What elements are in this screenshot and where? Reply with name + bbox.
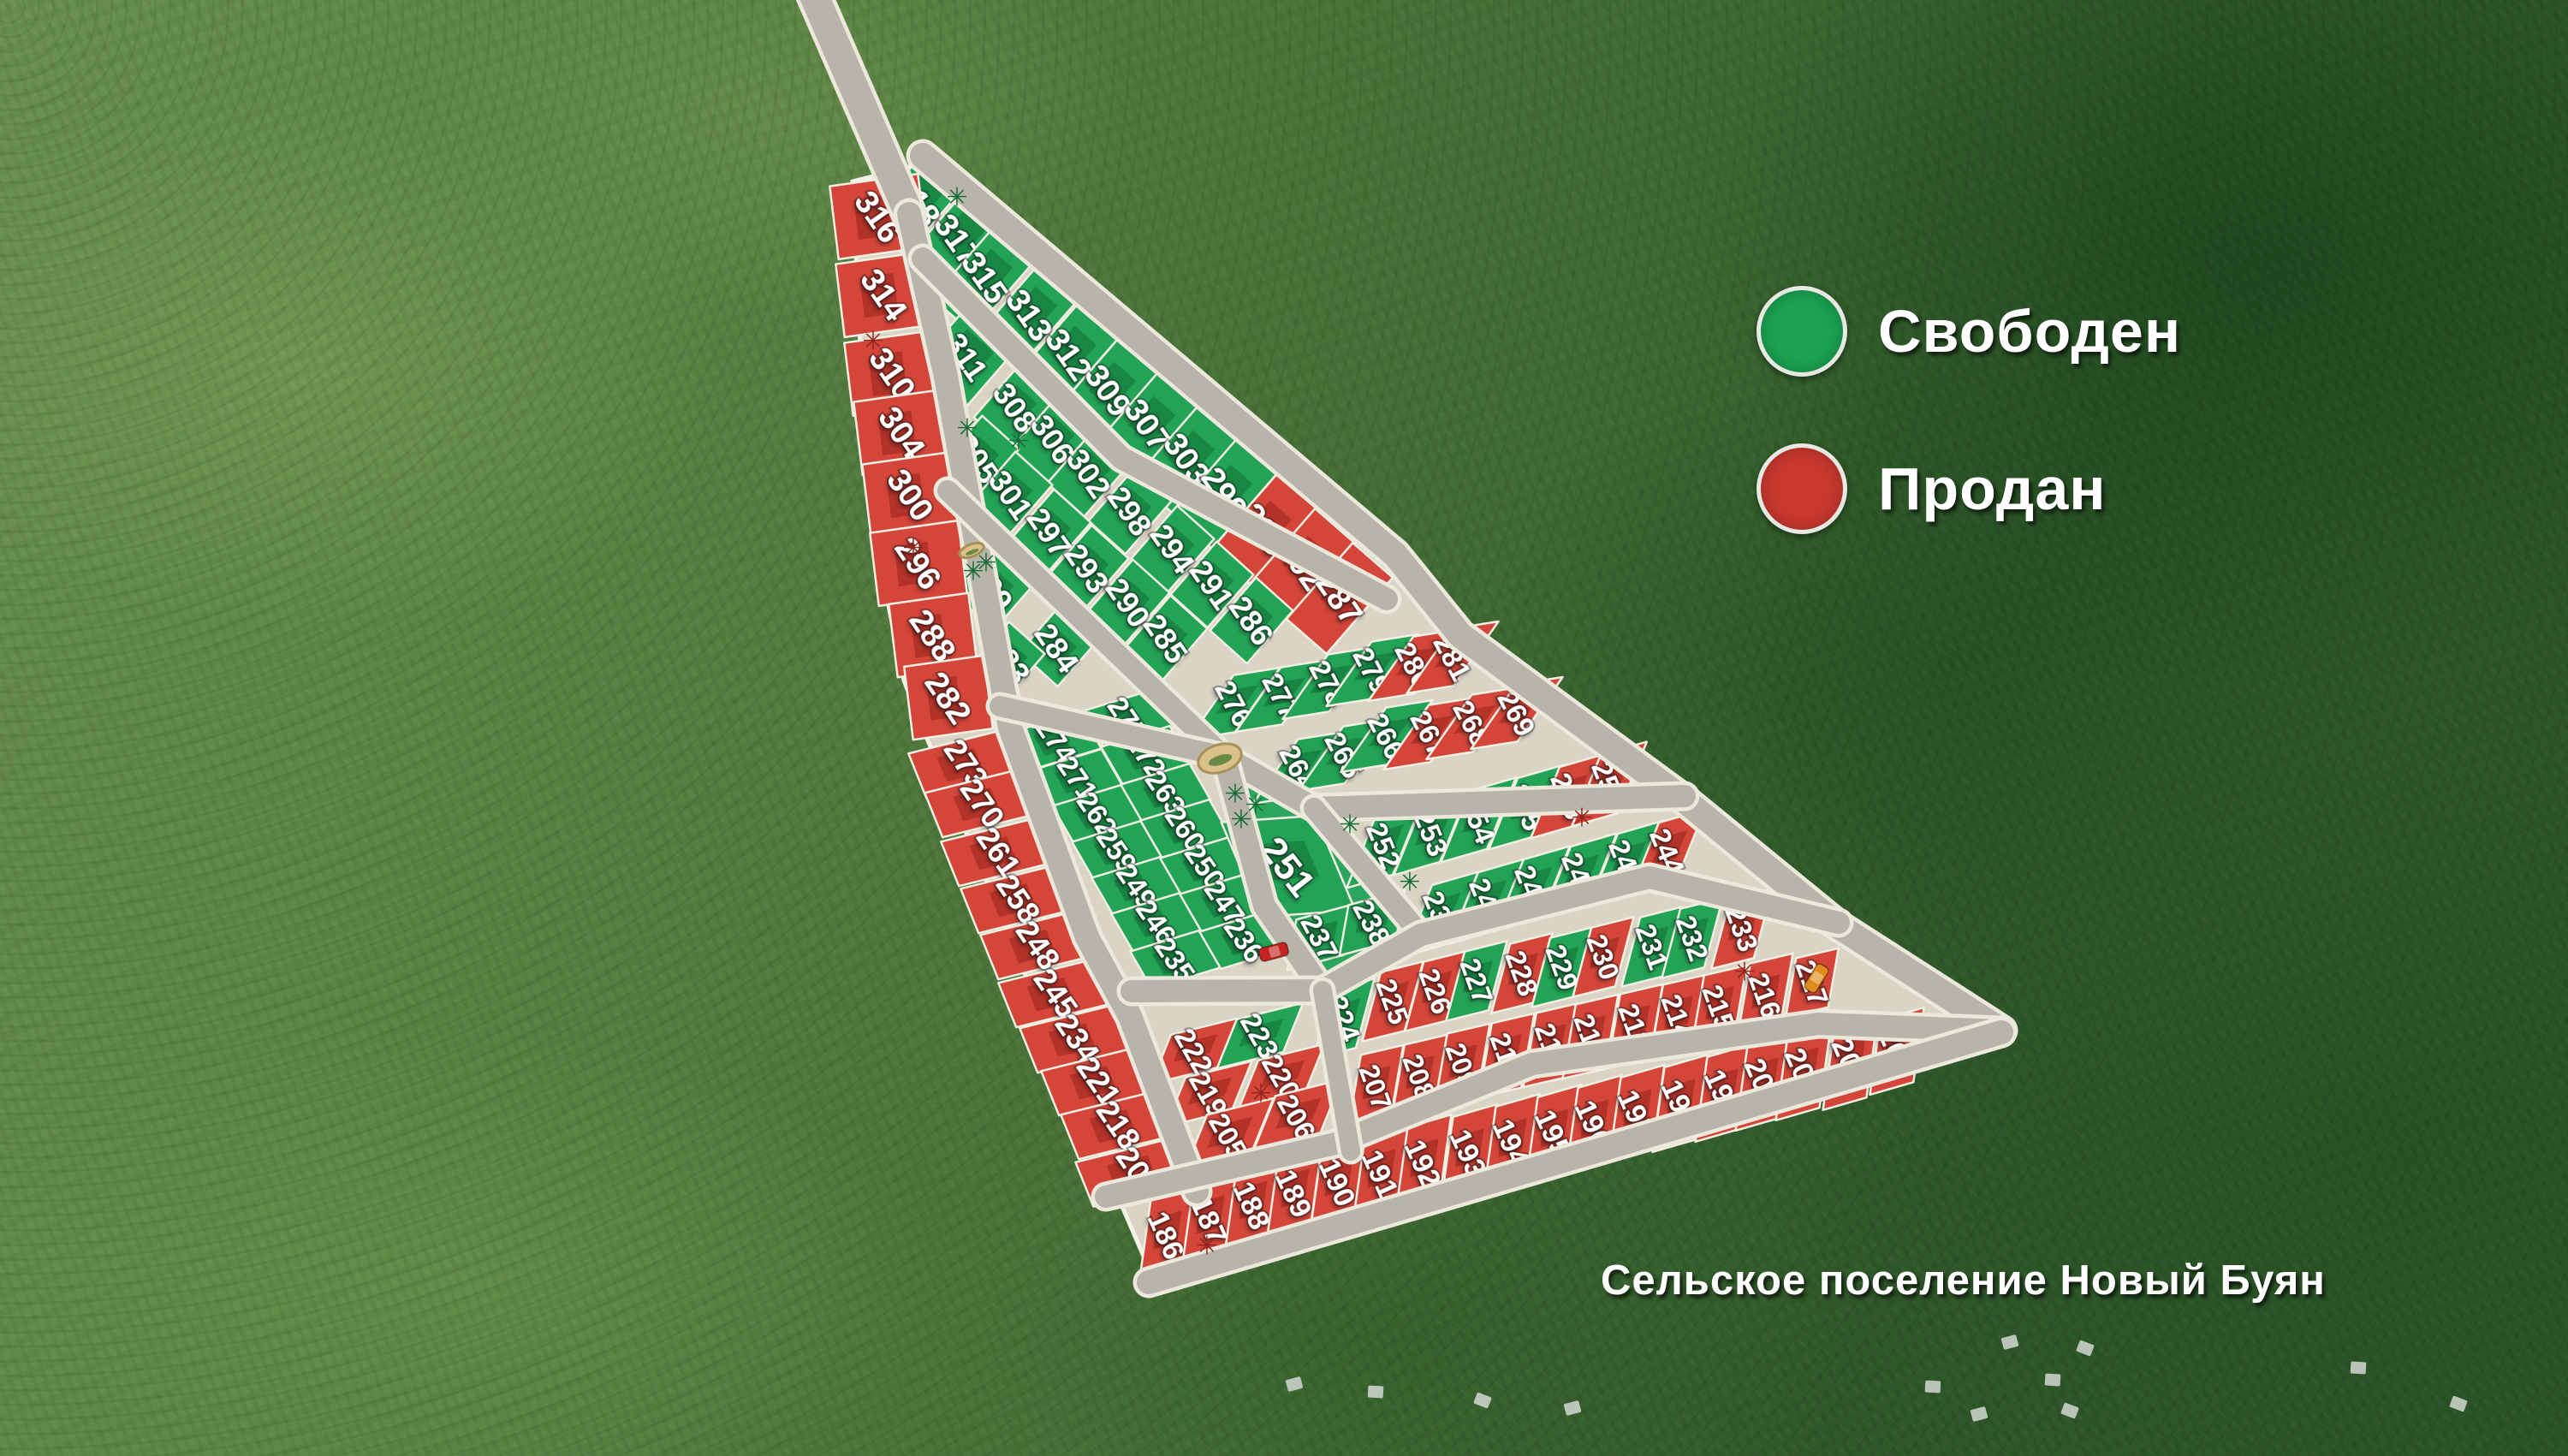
settlement-caption: Сельское поселение Новый Буян <box>1601 1257 2326 1304</box>
plot-296[interactable]: 296 <box>870 520 966 606</box>
tree-icon: ✳ <box>902 535 924 563</box>
legend-row-sold: Продан <box>1757 443 2181 534</box>
tree-icon: ✳ <box>1224 781 1245 809</box>
village-building <box>1285 1376 1303 1392</box>
village-building <box>1925 1381 1941 1394</box>
tree-icon: ✳ <box>975 550 996 578</box>
tree-icon: ✳ <box>1399 869 1420 897</box>
village-building <box>2000 1334 2018 1350</box>
legend-free-label: Свободен <box>1878 297 2181 365</box>
tree-icon: ✳ <box>1733 959 1755 987</box>
village-building <box>2045 1374 2061 1387</box>
village-building <box>1368 1386 1384 1399</box>
tree-icon: ✳ <box>1571 805 1592 833</box>
legend-sold-label: Продан <box>1878 455 2107 523</box>
free-status-icon <box>1757 286 1847 377</box>
legend: Свободен Продан <box>1757 286 2181 534</box>
village-building <box>1473 1392 1492 1409</box>
plot-282[interactable]: 282 <box>904 656 993 740</box>
tree-icon: ✳ <box>1339 811 1360 840</box>
village-building <box>1563 1400 1581 1416</box>
legend-row-free: Свободен <box>1757 286 2181 377</box>
tree-icon: ✳ <box>1250 1080 1271 1108</box>
tree-icon: ✳ <box>1230 806 1251 835</box>
satellite-map: 3183173153133123093073032992952922873113… <box>0 0 2568 1456</box>
sold-status-icon <box>1757 443 1847 534</box>
plots-overlay: 3183173153133123093073032992952922873113… <box>0 0 2568 1456</box>
tree-icon: ✳ <box>862 328 883 356</box>
village-building <box>1970 1406 1988 1422</box>
tree-icon: ✳ <box>946 184 967 212</box>
tree-icon: ✳ <box>956 415 978 443</box>
village-building <box>2076 1340 2095 1357</box>
village-building <box>2060 1402 2079 1419</box>
village-building <box>2449 1395 2468 1412</box>
tree-icon: ✳ <box>1008 428 1029 456</box>
tree-icon: ✳ <box>1196 1233 1217 1261</box>
village-building <box>2351 1362 2367 1375</box>
